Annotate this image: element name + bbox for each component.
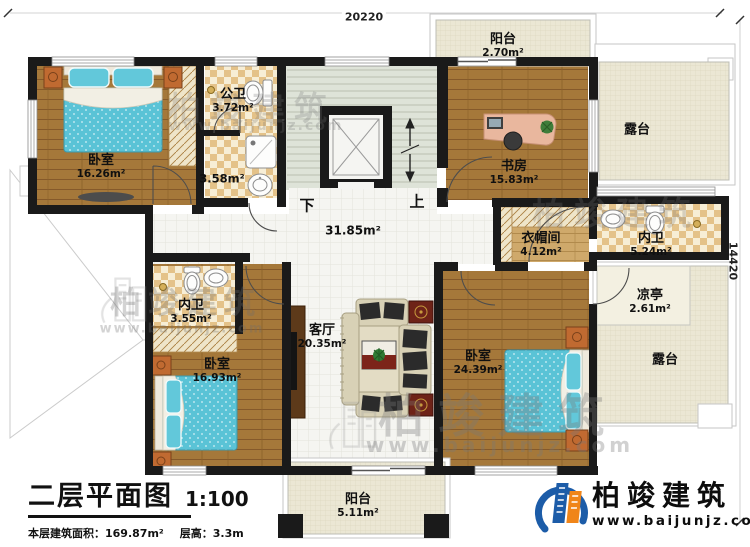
room-label-terrace-right: 露台: [652, 354, 678, 369]
room-label-living: 客厅 20.35m²: [298, 324, 347, 350]
pillar: [278, 514, 303, 538]
terrace-top-floor: [599, 62, 729, 180]
room-label-bath-right: 内卫 5.24m²: [630, 232, 671, 258]
stair-label-down: 下: [299, 195, 314, 216]
room-label-terrace-top: 露台: [624, 124, 650, 139]
sliding-door: [352, 466, 425, 475]
room-label-public-bath: 公卫 3.72m²: [212, 88, 253, 114]
dimension-right: 14420: [727, 239, 740, 283]
window: [28, 100, 37, 158]
watermark-text: 柏竣建筑: [532, 187, 700, 235]
page-title: 二层平面图: [28, 474, 173, 513]
floor-plan: 柏竣建筑 www.baijunjz.com 柏竣建筑 www.baijunjz.…: [0, 0, 750, 547]
room-label-bath-bl: 内卫 3.55m²: [170, 299, 211, 325]
window: [475, 466, 557, 475]
watermark-url: www.baijunjz.com: [366, 433, 634, 457]
watermark-url: www.baijunjz.com: [169, 118, 344, 134]
room-label-bedroom-tl: 卧室 16.26m²: [77, 154, 126, 180]
room-label-bedroom-br: 卧室 24.39m²: [454, 350, 503, 376]
bench-bedroom-tl: [78, 192, 134, 202]
brand-logo-spacer: [528, 476, 584, 534]
bed-bedroom-tl: [64, 66, 162, 152]
window: [52, 57, 134, 66]
room-label-pavilion: 凉亭 2.61m²: [629, 289, 670, 315]
floor-height-info: 层高：3.3m: [180, 525, 244, 541]
window: [589, 100, 598, 172]
window: [325, 57, 389, 66]
brand-name: 柏竣建筑: [592, 481, 750, 510]
title-block: 二层平面图 1:100 本层建筑面积：169.87m² 层高：3.3m: [28, 474, 249, 541]
dimension-top: 20220: [342, 11, 386, 24]
shower-icon: [246, 136, 276, 168]
room-label-study: 书房 15.83m²: [490, 160, 539, 186]
room-label-balcony-top: 阳台 2.70m²: [482, 33, 523, 59]
tv-cabinet: [289, 306, 305, 418]
room-label-hall: 31.85m²: [325, 224, 381, 237]
room-label-balcony-bottom: 阳台 5.11m²: [337, 493, 378, 519]
window: [215, 57, 257, 66]
room-label-bedroom-bl: 卧室 16.93m²: [193, 358, 242, 384]
room-label-cloakroom: 衣帽间 4.12m²: [520, 232, 561, 258]
room-label-shower: 3.58m²: [199, 173, 244, 186]
floor-plan-drawing: [0, 0, 750, 547]
brand-website: www.baijunjz.com: [592, 513, 750, 529]
stair-label-up: 上: [409, 191, 424, 212]
bed-bedroom-bl: [155, 376, 237, 450]
brand-block: 柏竣建筑 www.baijunjz.com: [528, 476, 750, 534]
pillar: [424, 514, 449, 538]
floor-area-info: 本层建筑面积：169.87m²: [28, 525, 164, 541]
sink-icon: [248, 174, 272, 196]
drawing-scale: 1:100: [185, 487, 249, 513]
title-rule: [28, 515, 191, 518]
